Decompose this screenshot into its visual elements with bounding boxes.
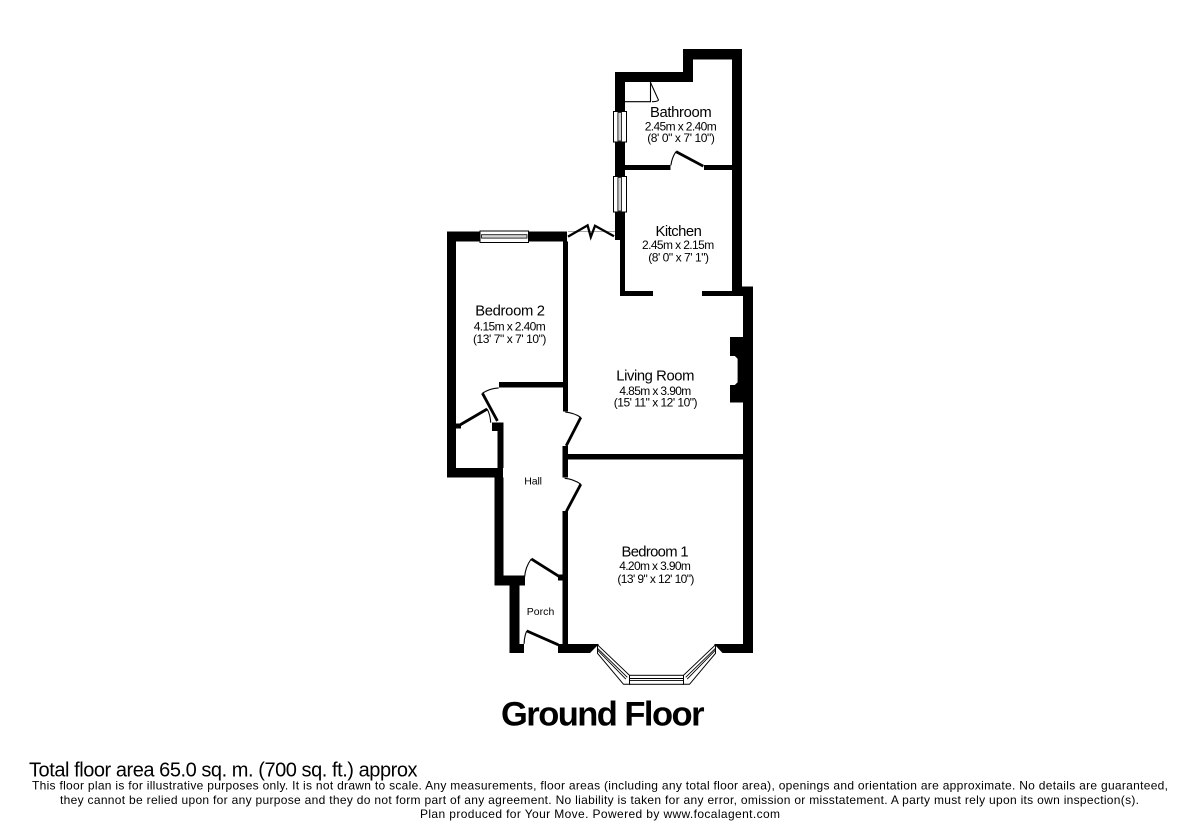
svg-text:Bedroom 2: Bedroom 2 — [475, 304, 545, 320]
svg-text:This floor plan is for illustr: This floor plan is for illustrative purp… — [32, 779, 1168, 793]
svg-text:Hall: Hall — [524, 476, 542, 488]
svg-text:Plan produced for Your Move. P: Plan produced for Your Move. Powered by … — [420, 807, 780, 821]
svg-text:(8' 0" x 7' 10"): (8' 0" x 7' 10") — [647, 131, 715, 145]
svg-text:Porch: Porch — [527, 606, 555, 618]
svg-text:(15' 11" x 12' 10"): (15' 11" x 12' 10") — [614, 395, 698, 409]
svg-text:(8' 0" x 7' 1"): (8' 0" x 7' 1") — [648, 251, 709, 265]
svg-text:(13' 9" x 12' 10"): (13' 9" x 12' 10") — [617, 572, 694, 586]
svg-text:Living Room: Living Room — [616, 369, 694, 385]
svg-text:Ground Floor: Ground Floor — [501, 695, 705, 733]
svg-text:they cannot be relied upon for: they cannot be relied upon for any purpo… — [60, 793, 1139, 807]
svg-text:(13' 7" x 7' 10"): (13' 7" x 7' 10") — [473, 332, 546, 346]
